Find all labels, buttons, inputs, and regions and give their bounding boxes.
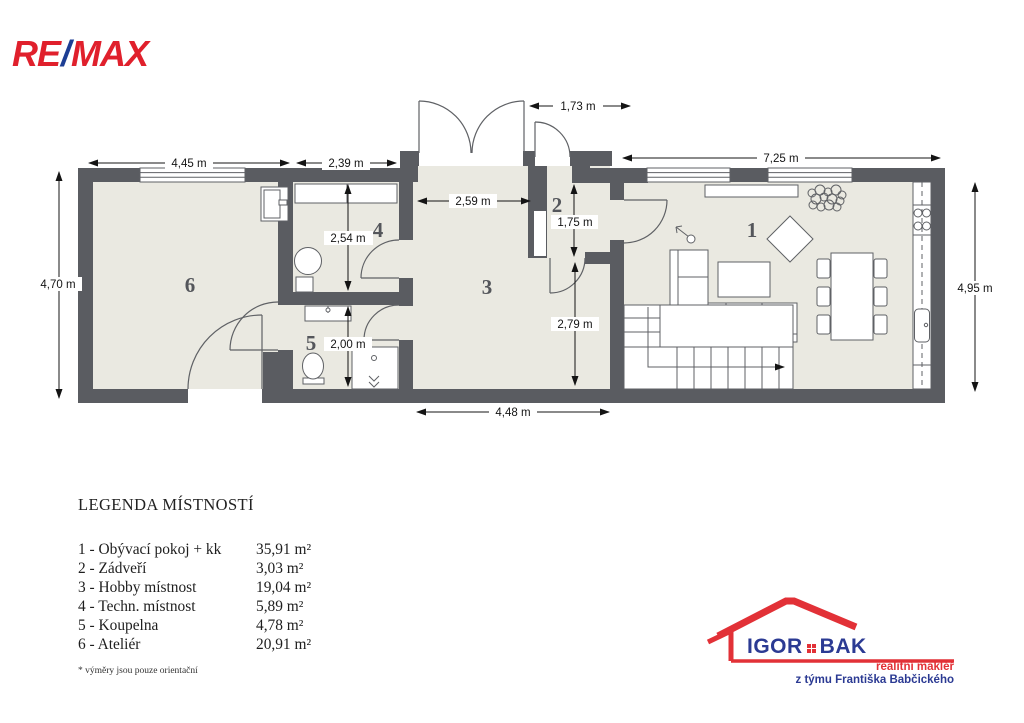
legend-room-area: 3,03 m² (256, 560, 311, 579)
room6-fixtures (261, 187, 288, 221)
legend-room-area: 19,04 m² (256, 579, 311, 598)
entry-double-door (419, 101, 524, 153)
sideboard (705, 185, 798, 197)
window-room6 (140, 168, 245, 182)
dim-bottom: 4,48 m (495, 407, 530, 419)
dining-table (831, 253, 873, 340)
floor-plan: 4,45 m 2,39 m 1,73 m 7,25 m 4,70 m 4,95 … (0, 0, 1024, 470)
dim-room4: 2,54 m (330, 233, 365, 245)
legend-room-name: 3 - Hobby místnost (78, 579, 256, 598)
window-room1-right (768, 168, 852, 182)
room-label-1: 1 (747, 218, 758, 242)
legend-room-area: 20,91 m² (256, 636, 311, 655)
room-label-4: 4 (373, 218, 384, 242)
room-label-5: 5 (306, 331, 317, 355)
dim-room3-right: 2,79 m (557, 319, 592, 331)
legend-row: 3 - Hobby místnost 19,04 m² (78, 579, 311, 598)
dim-right: 4,95 m (957, 283, 992, 295)
boiler (295, 248, 322, 275)
dim-room2: 1,75 m (557, 217, 592, 229)
legend-room-name: 1 - Obývací pokoj + kk (78, 541, 256, 560)
toilet (303, 353, 324, 379)
entry-single-door (535, 122, 570, 157)
legend-title: LEGENDA MÍSTNOSTÍ (78, 495, 311, 515)
legend-room-name: 5 - Koupelna (78, 617, 256, 636)
page: RE/MAX (0, 0, 1024, 723)
agent-tagline-1: realitní makléř (876, 661, 954, 673)
coffee-table (718, 262, 770, 297)
tech-unit (296, 277, 313, 292)
dim-top-left: 4,45 m (171, 158, 206, 170)
dim-top-right: 7,25 m (763, 153, 798, 165)
staircase (624, 305, 793, 389)
agent-name: IGOR BAK (747, 635, 867, 659)
legend-room-area: 35,91 m² (256, 541, 311, 560)
floors (93, 166, 931, 389)
room-label-3: 3 (482, 275, 493, 299)
legend: LEGENDA MÍSTNOSTÍ 1 - Obývací pokoj + kk… (78, 495, 311, 654)
legend-room-name: 6 - Ateliér (78, 636, 256, 655)
legend-room-name: 4 - Techn. místnost (78, 598, 256, 617)
tech-cabinets (295, 184, 397, 203)
dim-left: 4,70 m (40, 279, 75, 291)
shower (352, 347, 398, 389)
agent-tagline-2: z týmu Františka Babčického (796, 674, 955, 686)
room-label-6: 6 (185, 273, 196, 297)
legend-room-area: 4,78 m² (256, 617, 311, 636)
agent-first-name: IGOR (747, 635, 803, 659)
legend-room-name: 2 - Zádveří (78, 560, 256, 579)
legend-rows: 1 - Obývací pokoj + kk 35,91 m² 2 - Zádv… (78, 541, 311, 654)
dim-room3-top: 2,59 m (455, 196, 490, 208)
agent-last-name: BAK (820, 635, 867, 659)
legend-row: 1 - Obývací pokoj + kk 35,91 m² (78, 541, 311, 560)
dim-entry: 1,73 m (560, 101, 595, 113)
legend-footnote: * výměry jsou pouze orientační (78, 666, 198, 676)
legend-row: 2 - Zádveří 3,03 m² (78, 560, 311, 579)
legend-row: 5 - Koupelna 4,78 m² (78, 617, 311, 636)
cabinet-handle (279, 200, 287, 205)
legend-row: 4 - Techn. místnost 5,89 m² (78, 598, 311, 617)
window-room1-left (647, 168, 730, 182)
agent-dots-icon (807, 644, 816, 653)
wall-niche (534, 211, 546, 256)
dim-room5: 2,00 m (330, 339, 365, 351)
room-label-2: 2 (552, 193, 563, 217)
dim-top-mid: 2,39 m (328, 158, 363, 170)
legend-row: 6 - Ateliér 20,91 m² (78, 636, 311, 655)
kitchen-counter (913, 182, 931, 389)
legend-room-area: 5,89 m² (256, 598, 311, 617)
